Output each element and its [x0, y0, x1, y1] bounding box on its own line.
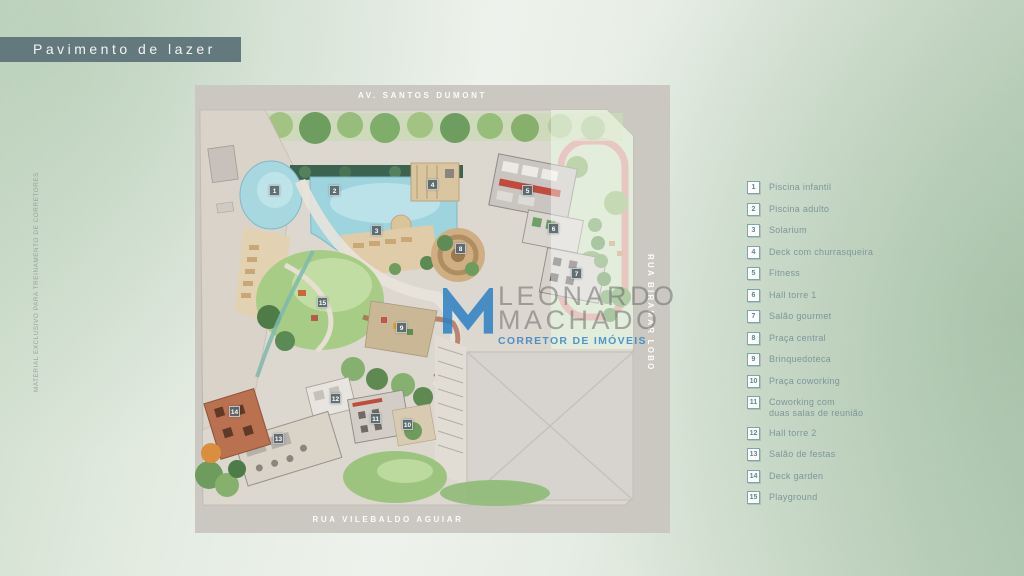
- legend-item: 2 Piscina adulto: [747, 203, 937, 216]
- legend-number-box: 4: [747, 246, 760, 259]
- central-plaza: [431, 228, 485, 282]
- legend-number-box: 15: [747, 491, 760, 504]
- map-marker: 15: [317, 297, 328, 308]
- vacant-lot: [467, 352, 633, 500]
- legend-number-box: 8: [747, 332, 760, 345]
- map-marker: 7: [571, 268, 582, 279]
- legend-label: Playground: [769, 491, 818, 503]
- street-label-top: AV. SANTOS DUMONT: [300, 91, 545, 100]
- map-marker: 12: [330, 393, 341, 404]
- map-marker: 3: [371, 225, 382, 236]
- legend-number-box: 2: [747, 203, 760, 216]
- legend-item: 6 Hall torre 1: [747, 289, 937, 302]
- map-marker: 10: [402, 419, 413, 430]
- map-marker: 6: [548, 223, 559, 234]
- legend-label: Hall torre 1: [769, 289, 817, 301]
- fade-overlay: [551, 110, 633, 349]
- coworking-plaza: [392, 404, 436, 446]
- legend-item: 14 Deck garden: [747, 470, 937, 483]
- map-marker: 9: [396, 322, 407, 333]
- legend-item: 9 Brinquedoteca: [747, 353, 937, 366]
- map-marker: 5: [522, 185, 533, 196]
- legend-item: 10 Praça coworking: [747, 375, 937, 388]
- map-marker: 8: [455, 243, 466, 254]
- legend-item: 15 Playground: [747, 491, 937, 504]
- legend-label: Praça coworking: [769, 375, 840, 387]
- legend-item: 7 Salão gourmet: [747, 310, 937, 323]
- legend-label: Salão de festas: [769, 448, 836, 460]
- map-marker: 13: [273, 433, 284, 444]
- legend-number-box: 5: [747, 267, 760, 280]
- map-marker: 4: [427, 179, 438, 190]
- legend-item: 5 Fitness: [747, 267, 937, 280]
- legend-item: 8 Praça central: [747, 332, 937, 345]
- site-plan: AV. SANTOS DUMONT RUA VILEBALDO AGUIAR R…: [195, 85, 670, 533]
- legend-label: Piscina adulto: [769, 203, 829, 215]
- legend-number-box: 3: [747, 224, 760, 237]
- map-marker: 14: [229, 406, 240, 417]
- legend-item: 1 Piscina infantil: [747, 181, 937, 194]
- parking-strip: [435, 335, 467, 485]
- legend-item: 4 Deck com churrasqueira: [747, 246, 937, 259]
- legend-label: Brinquedoteca: [769, 353, 831, 365]
- legend-number-box: 9: [747, 353, 760, 366]
- legend-label: Piscina infantil: [769, 181, 831, 193]
- legend-number-box: 10: [747, 375, 760, 388]
- legend-label: Deck com churrasqueira: [769, 246, 873, 258]
- legend-number-box: 11: [747, 396, 760, 409]
- legend-number-box: 13: [747, 448, 760, 461]
- legend-label: Deck garden: [769, 470, 823, 482]
- street-label-right: RUA BIRAMAR LOBO: [646, 228, 655, 398]
- legend-item: 3 Solarium: [747, 224, 937, 237]
- legend-number-box: 1: [747, 181, 760, 194]
- site-plan-illustration: [195, 85, 670, 533]
- legend-label: Salão gourmet: [769, 310, 831, 322]
- legend-label: Solarium: [769, 224, 807, 236]
- legend-number-box: 6: [747, 289, 760, 302]
- map-marker: 2: [329, 185, 340, 196]
- map-marker: 1: [269, 185, 280, 196]
- street-label-bottom: RUA VILEBALDO AGUIAR: [288, 515, 488, 524]
- legend-panel: 1 Piscina infantil 2 Piscina adulto 3 So…: [747, 181, 937, 504]
- legend-item: 12 Hall torre 2: [747, 427, 937, 440]
- legend-number-box: 12: [747, 427, 760, 440]
- training-disclaimer-vertical: MATERIAL EXCLUSIVO PARA TREINAMENTO DE C…: [33, 202, 40, 392]
- legend-item: 13 Salão de festas: [747, 448, 937, 461]
- page-title: Pavimento de lazer: [0, 37, 241, 62]
- marketing-page: Pavimento de lazer MATERIAL EXCLUSIVO PA…: [0, 0, 1024, 576]
- legend-label: Hall torre 2: [769, 427, 817, 439]
- legend-item: 11 Coworking com duas salas de reunião: [747, 396, 937, 418]
- legend-label: Fitness: [769, 267, 800, 279]
- legend-label: Coworking com duas salas de reunião: [769, 396, 863, 418]
- map-marker: 11: [370, 413, 381, 424]
- legend-label: Praça central: [769, 332, 826, 344]
- legend-number-box: 7: [747, 310, 760, 323]
- legend-number-box: 14: [747, 470, 760, 483]
